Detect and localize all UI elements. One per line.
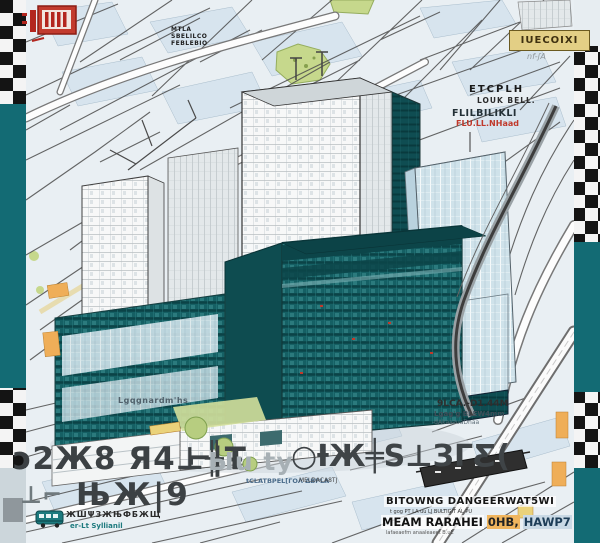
scribble-note: nf-ʃA [527,52,546,61]
yellow-name-tag: IUECOIXI [509,30,590,51]
building-annotation-right-2: Lgag'g BLEW4mm [434,410,505,418]
sketch-block-top-right [518,0,572,30]
city-map-illustration: MTLA SBELILCO FEBLEBIO IUECOIXI nf-ʃA ET… [0,0,600,543]
caption-row2-part-a: ⊥⌐ [20,481,62,509]
checkered-border-top-right [574,46,600,242]
bottom-right-title: BITOWNG DANGEERWAT5WI [384,496,556,507]
building-annotation-left: Lgqgnardm'hs [118,396,188,405]
building-annotation-right-3: -dAkaaƨuaDnaa [432,419,479,426]
top-left-text-block: MTLA SBELILCO FEBLEBIO [171,26,208,47]
caption-row2-part-b: ЊЖ|9 [76,477,190,513]
caption-row1-part-d: ○ƗЖ╪S⊥ЗГƸ( [291,439,510,474]
caption-row1-part-c: Ыu ty [208,447,294,476]
bottom-right-station-row: MEAM RARAHEI 0HB, HAWP7 [381,515,572,529]
bottom-right-station-sub: lafaeaefm anaaleaeet B.uE [386,530,454,536]
district-label: ETCPLH [469,84,524,95]
station-code-orange: 0HB, [487,515,520,529]
border-right [574,0,600,543]
bus-stop-sublabel: er-Lt Syllianil [70,522,123,530]
building-annotation-right-1: 9LCA.-D1.44M [437,399,509,409]
checkered-border-bottom-right [574,392,600,468]
street-label: FLILBILIKLI [452,108,517,119]
district-sublabel: LOUK BELL. [477,96,536,105]
station-name: MEAM RARAHEI [381,515,484,529]
station-code-blue: HAWP7 [523,515,572,529]
street-label-red: FLU.LL.NHaad [456,119,519,128]
bus-stop-label: ЖШΨЗЖЊФБЖЩ [66,510,161,519]
bottom-mid-tiny-label: MELDACA8TJ [299,477,337,484]
